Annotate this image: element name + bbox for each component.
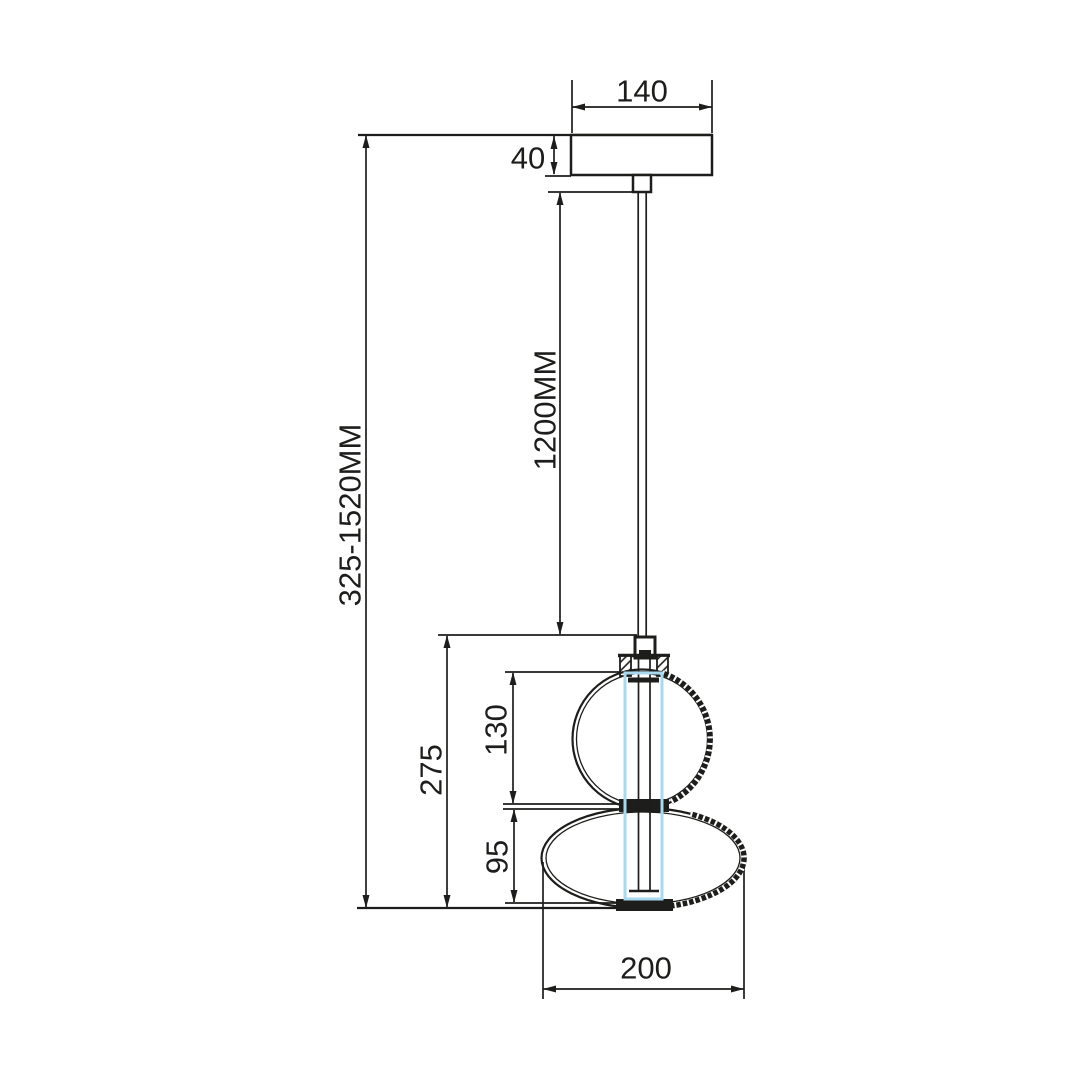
lower-shade [542, 808, 745, 908]
arrow-up-icon [363, 135, 370, 148]
canopy-body [571, 135, 712, 175]
bottom-collar [616, 899, 673, 911]
led-tube-accent-outline [625, 673, 662, 899]
dim-lower-shade-height: 95 [480, 809, 518, 903]
drawing-canvas: 140 40 1200MM 325-1520MM 275 130 [0, 0, 1080, 1080]
arrow-up-icon [557, 192, 564, 205]
globe-inner-outline [577, 674, 708, 805]
dim-canopy-height: 40 [511, 136, 558, 176]
arrow-up-icon [444, 635, 451, 648]
dim-label-upper-globe-height: 130 [479, 704, 514, 756]
globe-hatch-shading [662, 673, 710, 802]
ceiling-canopy [571, 135, 712, 192]
dim-shade-width: 200 [543, 951, 744, 993]
arrow-down-icon [557, 622, 564, 635]
dim-upper-globe-height: 130 [479, 672, 517, 804]
arrow-right-icon [731, 986, 744, 993]
arrow-down-icon [444, 895, 451, 908]
upper-globe [573, 670, 712, 809]
arrow-up-icon [510, 672, 517, 685]
extension-lines [357, 80, 744, 999]
led-tube [625, 658, 662, 899]
canopy-cable-connector [633, 175, 651, 192]
shade-hatch-ticks [654, 814, 744, 908]
arrow-right-icon [699, 104, 712, 111]
dim-label-lower-shade-height: 95 [480, 840, 515, 874]
dim-label-canopy-height: 40 [511, 141, 545, 176]
dim-label-cable-length: 1200MM [528, 350, 563, 471]
arrow-down-icon [551, 162, 558, 175]
arrow-down-icon [511, 890, 518, 903]
dim-label-canopy-width: 140 [616, 74, 668, 109]
dim-canopy-width: 140 [572, 74, 712, 111]
arrow-up-icon [551, 136, 558, 149]
arrow-down-icon [510, 791, 517, 804]
shade-hatch-shading [654, 814, 744, 908]
dim-body-height: 275 [414, 635, 451, 908]
dim-overall-height: 325-1520MM [333, 135, 370, 908]
dim-label-shade-width: 200 [620, 951, 672, 986]
dim-label-body-height: 275 [414, 744, 449, 796]
globe-hatch-ticks [662, 673, 710, 802]
arrow-left-icon [543, 986, 556, 993]
pendant-lamp-dimension-drawing: 140 40 1200MM 325-1520MM 275 130 [0, 0, 1080, 1080]
dim-cable-length: 1200MM [528, 192, 564, 635]
suspension-cable [638, 192, 646, 637]
arrow-down-icon [363, 895, 370, 908]
arrow-left-icon [572, 104, 585, 111]
dim-label-overall-height: 325-1520MM [333, 424, 368, 607]
arrow-up-icon [511, 809, 518, 822]
